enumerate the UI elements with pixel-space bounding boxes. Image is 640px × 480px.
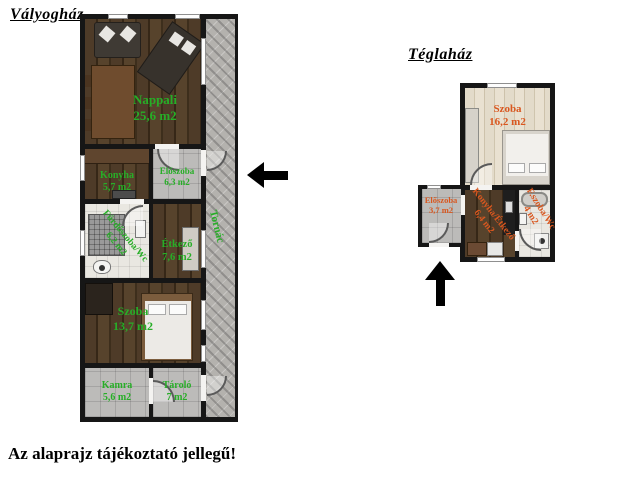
dining-table [91,65,135,139]
sofa [94,22,141,58]
door-gap [429,243,449,247]
teglahaz-title: Téglaház [408,46,472,64]
arrow-left-icon [247,162,289,189]
door-gap [470,185,492,190]
sink [505,201,513,213]
pillow [148,304,166,315]
door-gap [461,195,465,215]
bathtub [521,192,548,207]
door-gap [120,199,144,204]
fridge [487,242,503,256]
pillow [169,304,187,315]
pillow [120,26,137,43]
room-szoba [85,283,201,363]
toilet [93,260,111,274]
window [201,345,206,362]
door-gap [201,375,206,401]
bed [141,293,193,361]
room-konyha-etkezo [465,190,515,257]
cabinet [467,242,487,256]
room-kamra [85,368,149,417]
arrow-shaft [262,171,288,180]
kitchen-counter [503,190,515,235]
bed [502,130,550,185]
room-etkezo [153,204,201,278]
pillow [508,163,525,173]
window [201,300,206,330]
toilet-drain [99,265,105,271]
window [201,230,206,268]
window [80,155,85,181]
room-konyha [85,149,149,199]
window [80,230,85,256]
room-nappali [85,19,201,144]
window [108,14,128,19]
door-gap [515,231,519,251]
pillow [529,163,546,173]
teglahaz-plan: Szoba 16,2 m2 Előszoba 3,7 m2 Konyha/Étk… [415,83,560,263]
shower [88,214,125,256]
pillow [181,40,196,55]
chair [85,75,91,87]
wardrobe [85,283,113,315]
chair [85,97,91,109]
sideboard [182,227,199,271]
pillow [169,31,184,46]
stove [112,190,136,199]
door-gap [201,150,206,176]
window [487,83,517,88]
valyoghaz-title: Vályogház [10,6,84,24]
chair [85,119,91,131]
arrow-shaft [436,278,445,306]
sink [519,213,527,225]
kitchen-counter [85,149,149,164]
room-tornac [206,14,238,422]
corner-sofa [137,21,201,95]
valyoghaz-plan: Nappali 25,6 m2 Konyha 5,7 m2 Előszoba 6… [80,14,238,422]
floorplan-page: Vályogház Téglaház Az alaprajz tájékozta… [0,0,640,480]
window [427,185,441,189]
window [175,14,200,19]
pillow [99,26,116,43]
disclaimer-text: Az alaprajz tájékoztató jellegű! [8,444,236,464]
window [201,38,206,85]
arrow-up-icon [425,261,456,307]
window [477,257,505,262]
